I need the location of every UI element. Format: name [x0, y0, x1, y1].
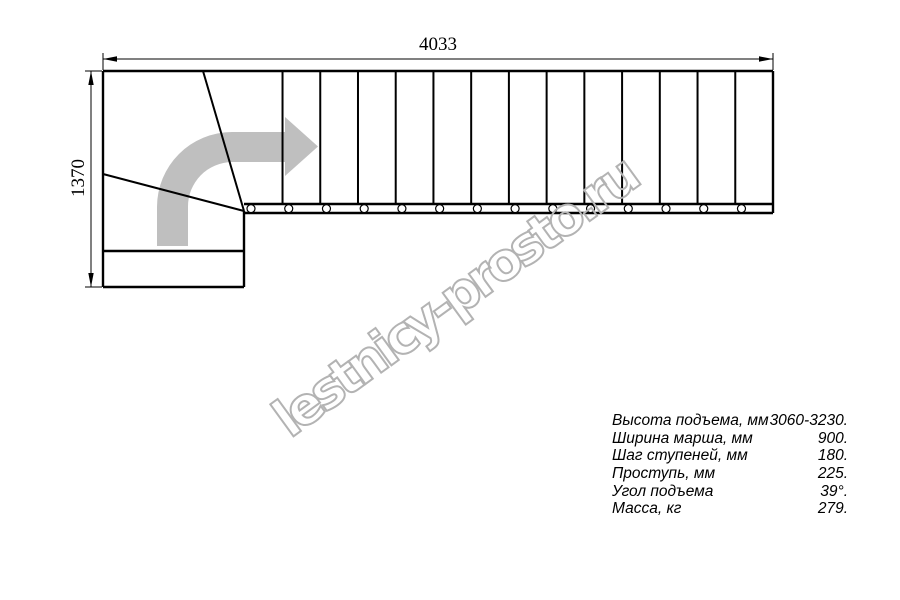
stair-outline	[103, 71, 773, 287]
spec-list: Высота подъема, мм 3060-3230. Ширина мар…	[612, 412, 848, 518]
spec-value: 279.	[818, 500, 848, 518]
spec-value: 180.	[818, 447, 848, 465]
spec-row: Ширина марша, мм 900.	[612, 430, 848, 448]
dimension-height-label: 1370	[68, 159, 90, 197]
spec-value: 900.	[818, 430, 848, 448]
spec-row: Шаг ступеней, мм 180.	[612, 447, 848, 465]
stair-drawing-canvas: 4033 1370 lestnicy-prosto.ru Высота подъ…	[0, 0, 900, 600]
mount-circles	[247, 205, 745, 213]
spec-row: Угол подъема 39°.	[612, 483, 848, 501]
spec-value: 3060-3230.	[770, 412, 848, 430]
direction-arrow-icon	[157, 117, 318, 246]
spec-label: Масса, кг	[612, 500, 681, 518]
dimension-width-label: 4033	[419, 34, 457, 56]
spec-label: Ширина марша, мм	[612, 430, 753, 448]
spec-row: Проступь, мм 225.	[612, 465, 848, 483]
spec-label: Проступь, мм	[612, 465, 715, 483]
spec-label: Высота подъема, мм	[612, 412, 769, 430]
spec-row: Масса, кг 279.	[612, 500, 848, 518]
spec-label: Шаг ступеней, мм	[612, 447, 748, 465]
spec-row: Высота подъема, мм 3060-3230.	[612, 412, 848, 430]
spec-value: 39°.	[820, 483, 848, 501]
tread-lines	[283, 71, 736, 204]
spec-label: Угол подъема	[612, 483, 713, 501]
spec-value: 225.	[818, 465, 848, 483]
